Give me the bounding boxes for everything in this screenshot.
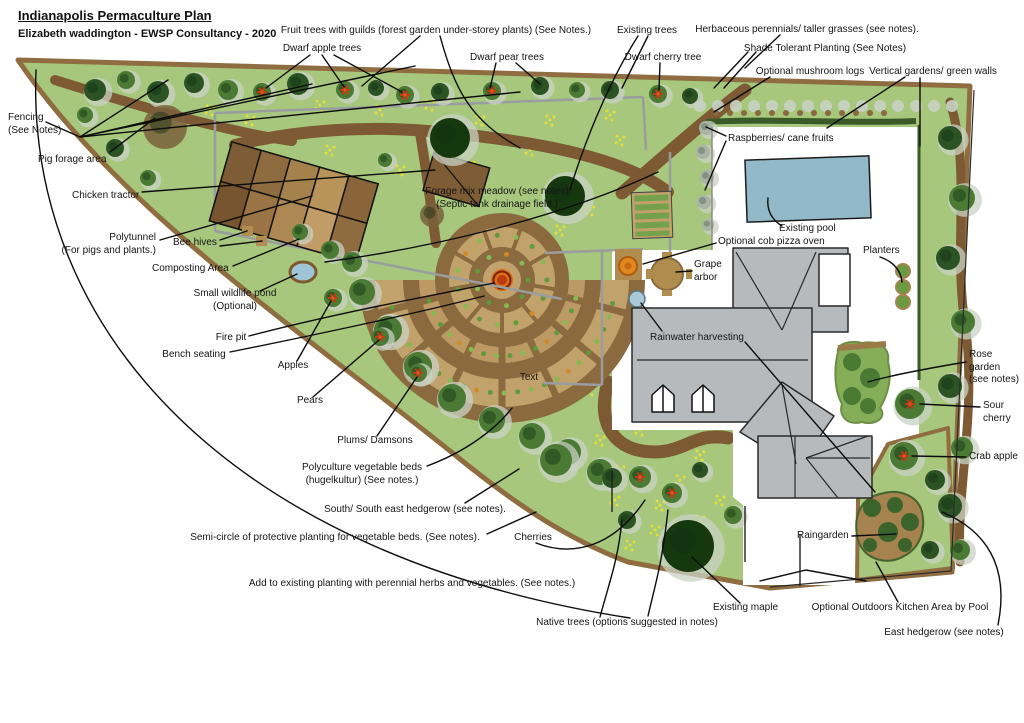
fruit-tree bbox=[889, 440, 925, 476]
tree bbox=[950, 308, 981, 339]
tree bbox=[184, 72, 210, 98]
tree bbox=[937, 372, 968, 403]
tree bbox=[348, 277, 382, 311]
fruit-tree bbox=[662, 482, 688, 508]
fruit-tree bbox=[629, 465, 658, 494]
tree bbox=[935, 244, 966, 275]
tree bbox=[478, 405, 512, 439]
tree bbox=[657, 514, 725, 582]
pizza-oven bbox=[615, 249, 642, 280]
vertical-garden-hedge bbox=[706, 121, 916, 122]
fruit-tree bbox=[894, 387, 933, 426]
wildlife-pond bbox=[290, 262, 316, 282]
tree bbox=[951, 436, 980, 465]
tree bbox=[948, 183, 982, 217]
swimming-pool bbox=[745, 156, 871, 222]
raised-beds bbox=[631, 191, 673, 238]
tree bbox=[950, 539, 976, 565]
permaculture-plan-page: Fruit trees with guilds (forest garden u… bbox=[0, 0, 1024, 723]
tree bbox=[542, 172, 594, 224]
tree bbox=[84, 78, 113, 107]
tree bbox=[420, 203, 444, 227]
rose-garden-border bbox=[838, 344, 886, 348]
tree bbox=[538, 441, 580, 483]
tree bbox=[602, 467, 628, 493]
page-title: Indianapolis Permaculture Plan bbox=[18, 8, 276, 23]
tree bbox=[937, 124, 968, 155]
plan-map bbox=[0, 0, 1024, 723]
tree bbox=[427, 114, 479, 166]
tree bbox=[437, 382, 473, 418]
tree bbox=[342, 251, 368, 277]
page-subtitle: Elizabeth waddington - EWSP Consultancy … bbox=[18, 28, 276, 40]
header: Indianapolis Permaculture Plan Elizabeth… bbox=[18, 8, 276, 40]
tree bbox=[925, 469, 951, 495]
